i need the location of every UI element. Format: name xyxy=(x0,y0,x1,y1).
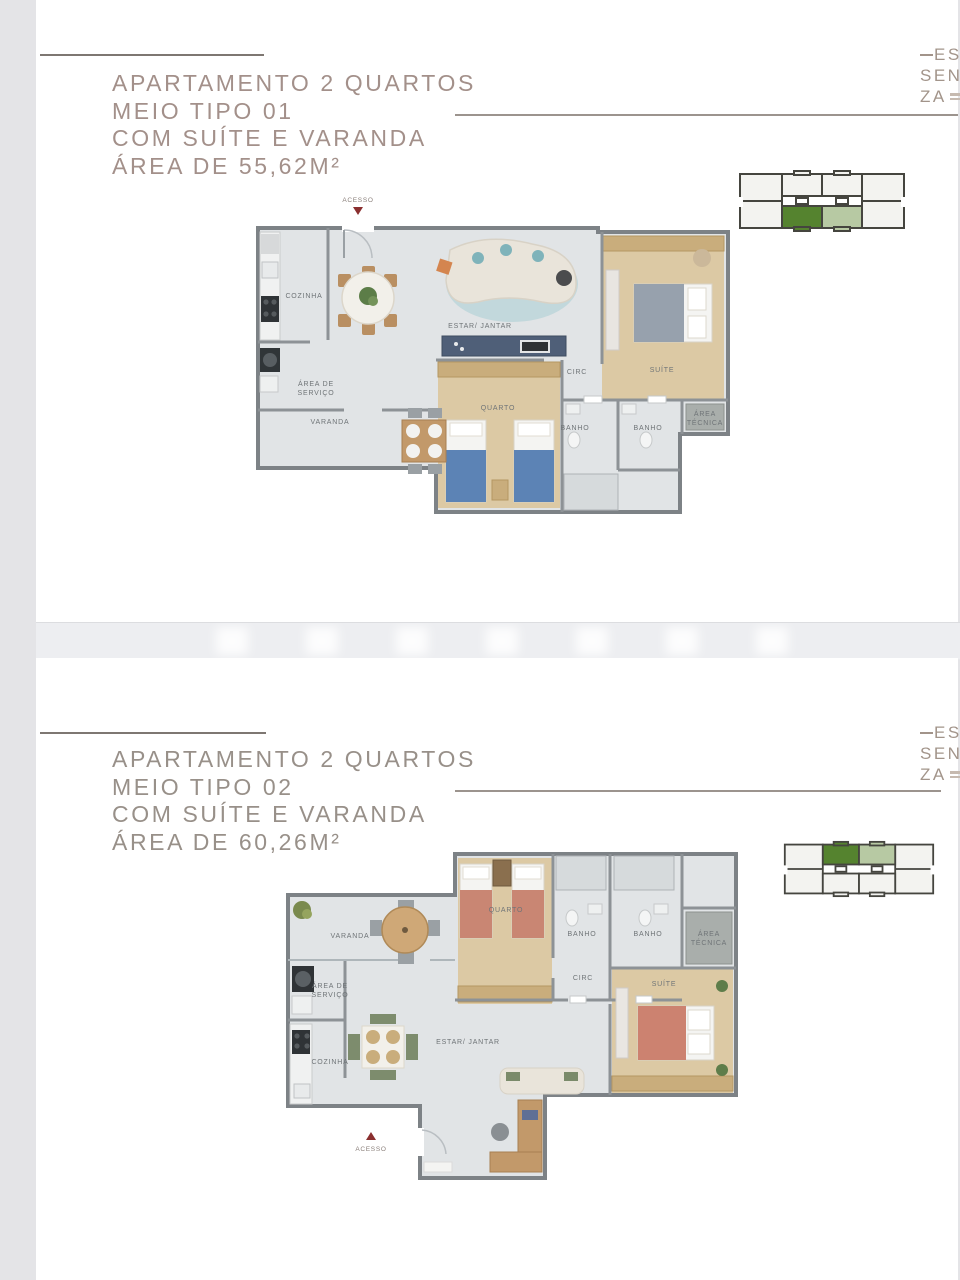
building-keyplan xyxy=(783,838,935,900)
label-tecnica: TÉCNICA xyxy=(691,938,727,947)
label-area-de: ÁREA DE xyxy=(298,379,334,388)
label-servico: SERVIÇO xyxy=(298,390,335,397)
label-estar-jantar: ESTAR/ JANTAR xyxy=(448,323,512,330)
label-banho: BANHO xyxy=(561,425,590,432)
label-banho: BANHO xyxy=(634,425,663,432)
label-cozinha: COZINHA xyxy=(311,1059,348,1066)
label-area: ÁREA xyxy=(698,929,720,938)
essenza-logo: ES SEN ZA xyxy=(920,44,960,107)
label-circ: CIRC xyxy=(567,369,587,376)
watermark xyxy=(186,627,826,655)
keyplan-units xyxy=(785,842,933,896)
floorplan-card-tipo01: APARTAMENTO 2 QUARTOS MEIO TIPO 01 COM S… xyxy=(36,0,958,622)
brochure-page: APARTAMENTO 2 QUARTOS MEIO TIPO 01 COM S… xyxy=(0,0,960,1280)
label-banho: BANHO xyxy=(568,931,597,938)
logo-line: ZA xyxy=(920,764,947,785)
label-tecnica: TÉCNICA xyxy=(687,418,723,427)
label-acesso: ACESSO xyxy=(355,1146,386,1153)
logo-dash xyxy=(920,732,933,734)
label-estar-jantar: ESTAR/ JANTAR xyxy=(436,1039,500,1046)
logo-dash xyxy=(920,54,933,56)
title-line-4: ÁREA DE 55,62M² xyxy=(112,153,476,181)
title-line-2: MEIO TIPO 02 xyxy=(112,774,476,802)
divider-line xyxy=(455,790,941,792)
apartment-title: APARTAMENTO 2 QUARTOS MEIO TIPO 01 COM S… xyxy=(112,70,476,180)
label-varanda: VARANDA xyxy=(311,419,350,426)
divider-line xyxy=(40,732,266,734)
page-gap xyxy=(36,622,960,660)
title-line-2: MEIO TIPO 01 xyxy=(112,98,476,126)
logo-line: SEN xyxy=(920,65,960,86)
label-quarto: QUARTO xyxy=(489,907,524,914)
logo-tagline-marks xyxy=(950,769,960,780)
page-margin-left xyxy=(0,0,36,1280)
logo-tagline-marks xyxy=(950,91,960,102)
floorplan-card-tipo02: APARTAMENTO 2 QUARTOS MEIO TIPO 02 COM S… xyxy=(36,658,958,1280)
keyplan-unit-highlight-dark xyxy=(823,845,859,865)
logo-line: ES xyxy=(934,44,960,65)
keyplan-units xyxy=(740,171,904,231)
access-arrow-icon xyxy=(366,1132,376,1140)
building-keyplan xyxy=(738,170,906,232)
divider-line xyxy=(455,114,958,116)
label-suite: SUÍTE xyxy=(652,979,677,988)
logo-line: SEN xyxy=(920,743,960,764)
keyplan-unit-highlight-dark xyxy=(782,206,822,228)
label-area: ÁREA xyxy=(694,409,716,418)
keyplan-unit-highlight-light xyxy=(822,206,862,228)
label-circ: CIRC xyxy=(573,975,593,982)
keyplan-unit-highlight-light xyxy=(859,845,895,865)
access-arrow-icon xyxy=(353,207,363,215)
label-varanda: VARANDA xyxy=(331,933,370,940)
floorplan-tipo02: ACESSO VARANDA QUARTO BANHO BANHO ÁREA T… xyxy=(250,848,750,1220)
apartment-title: APARTAMENTO 2 QUARTOS MEIO TIPO 02 COM S… xyxy=(112,746,476,856)
label-cozinha: COZINHA xyxy=(285,293,322,300)
essenza-logo: ES SEN ZA xyxy=(920,722,960,785)
title-line-1: APARTAMENTO 2 QUARTOS xyxy=(112,746,476,774)
label-quarto: QUARTO xyxy=(481,405,516,412)
label-suite: SUÍTE xyxy=(650,365,675,374)
label-servico: SERVIÇO xyxy=(312,992,349,999)
divider-line xyxy=(40,54,264,56)
label-banho: BANHO xyxy=(634,931,663,938)
floorplan-tipo01: ACESSO COZINHA ESTAR/ JANTAR ÁREA DE SER… xyxy=(250,192,740,524)
label-area-de: ÁREA DE xyxy=(312,981,348,990)
label-acesso: ACESSO xyxy=(342,197,373,204)
logo-line: ES xyxy=(934,722,960,743)
title-line-3: COM SUÍTE E VARANDA xyxy=(112,801,476,829)
title-line-1: APARTAMENTO 2 QUARTOS xyxy=(112,70,476,98)
logo-line: ZA xyxy=(920,86,947,107)
title-line-3: COM SUÍTE E VARANDA xyxy=(112,125,476,153)
